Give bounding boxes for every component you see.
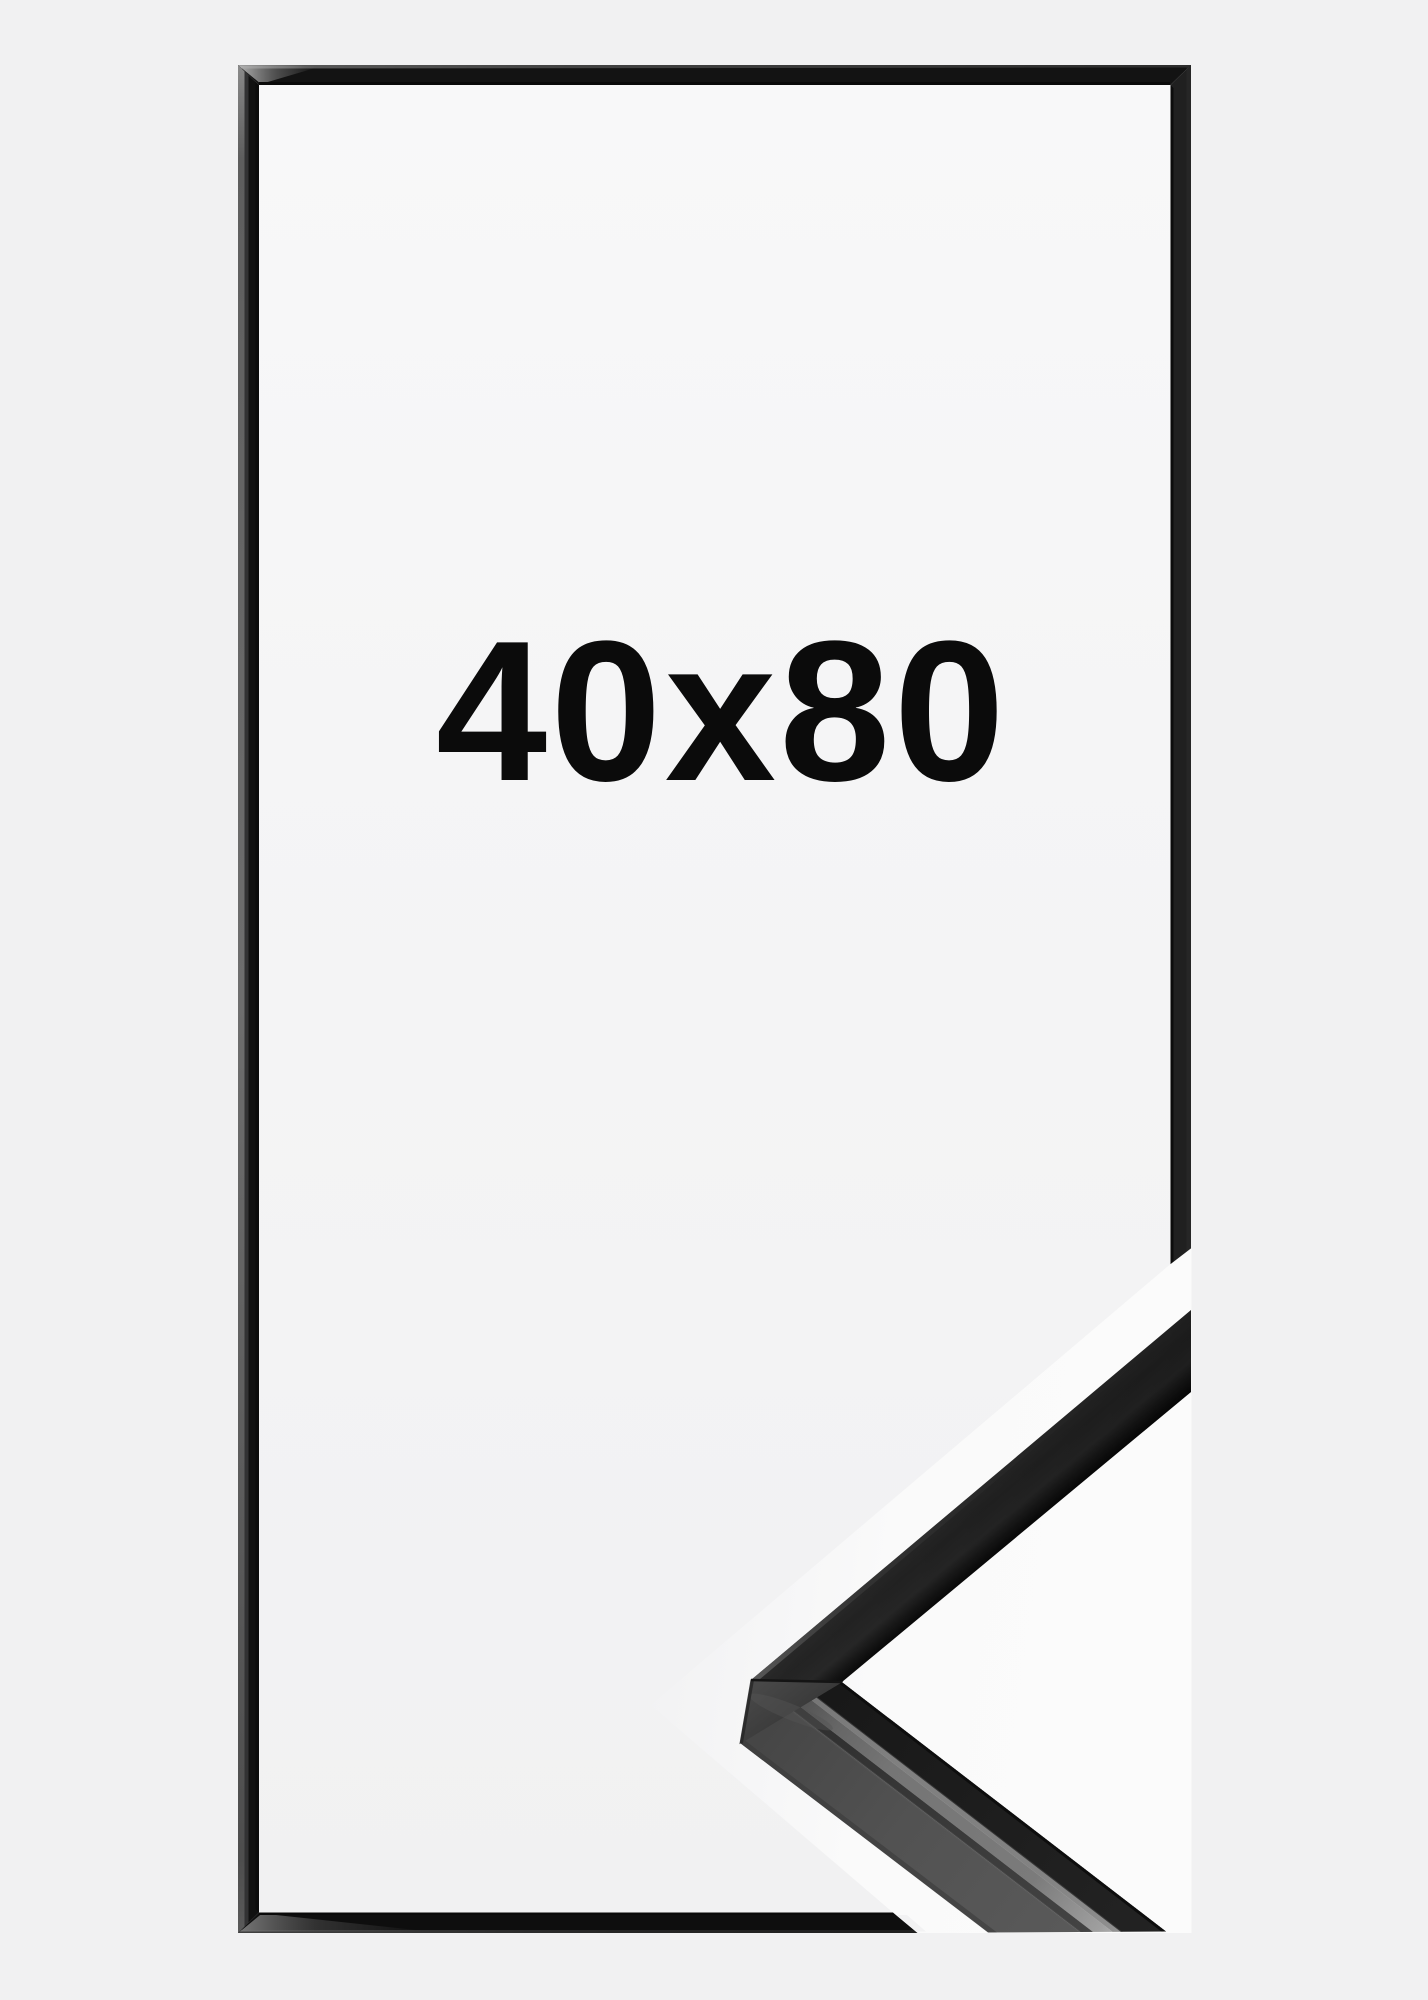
svg-text:40x80: 40x80 <box>436 600 1008 823</box>
